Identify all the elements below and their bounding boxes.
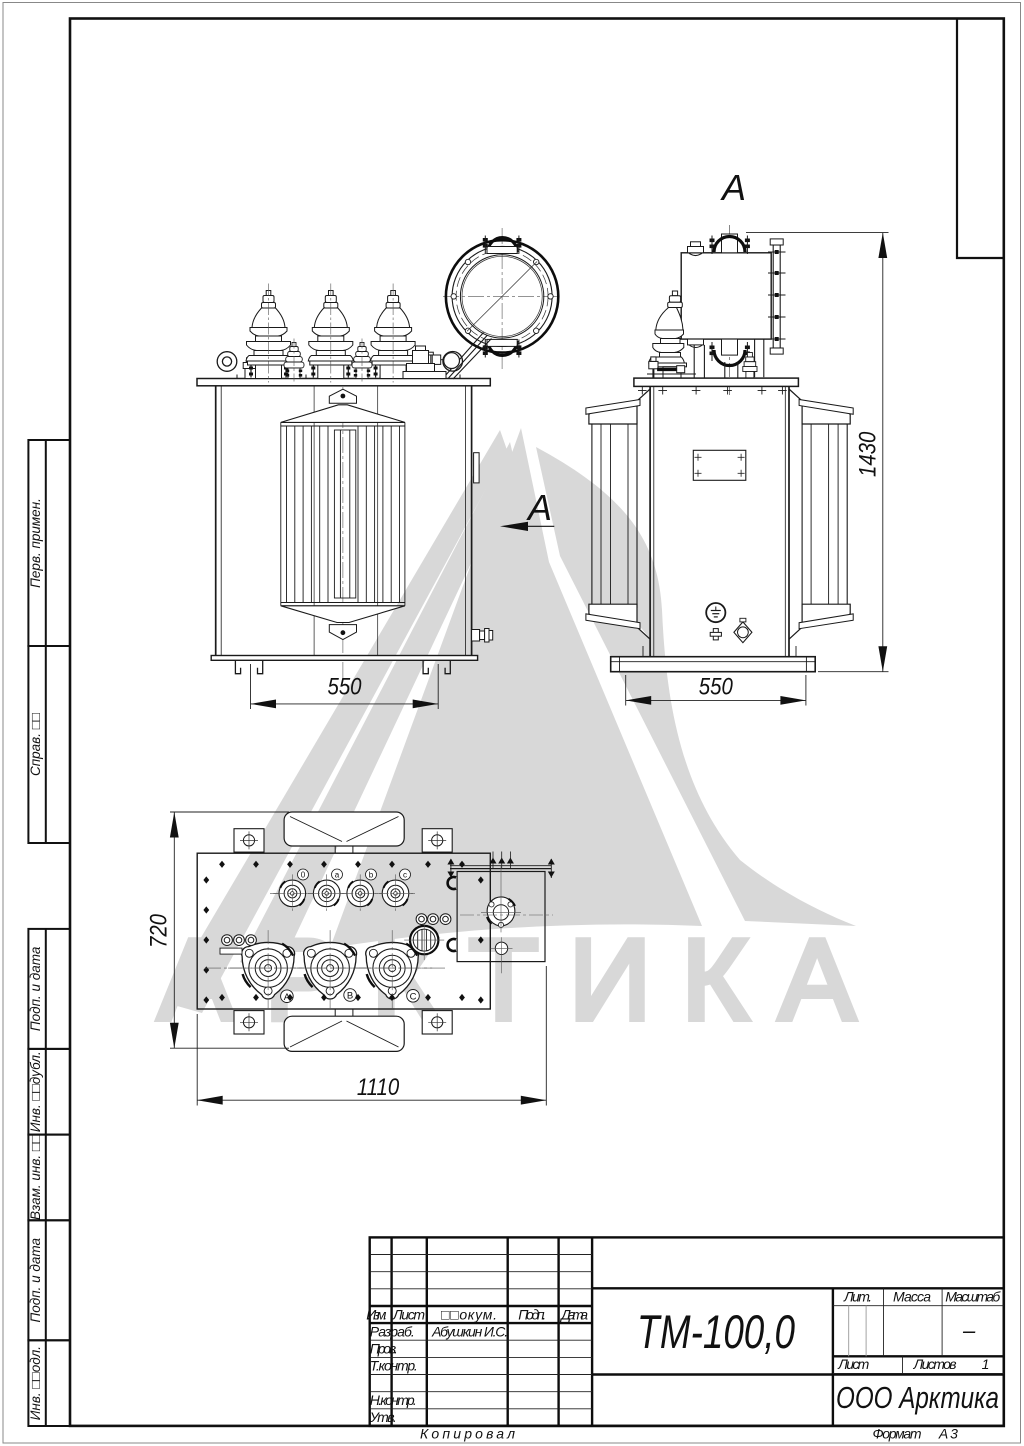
svg-text:Н.контр.: Н.контр. bbox=[370, 1392, 417, 1408]
svg-text:В: В bbox=[347, 991, 353, 1002]
svg-text:1110: 1110 bbox=[357, 1073, 400, 1100]
svg-text:Т.контр.: Т.контр. bbox=[370, 1358, 418, 1374]
svg-text:С: С bbox=[410, 991, 417, 1002]
svg-text:Листов: Листов bbox=[913, 1356, 957, 1372]
svg-text:Подп. и дата: Подп. и дата bbox=[28, 946, 43, 1031]
svg-text:Перв. примен.: Перв. примен. bbox=[28, 498, 43, 588]
svg-text:Лист: Лист bbox=[392, 1307, 425, 1323]
svg-text:Лист: Лист bbox=[837, 1356, 869, 1372]
svg-text:□□окум.: □□окум. bbox=[441, 1307, 497, 1323]
svg-text:Дата: Дата bbox=[559, 1307, 588, 1323]
svg-text:0: 0 bbox=[301, 870, 306, 879]
svg-text:Формат: Формат bbox=[873, 1426, 922, 1442]
svg-text:Лит.: Лит. bbox=[843, 1289, 872, 1305]
svg-text:а: а bbox=[335, 870, 340, 879]
svg-text:720: 720 bbox=[145, 913, 172, 948]
svg-text:А: А bbox=[526, 487, 552, 528]
svg-text:Утв.: Утв. bbox=[369, 1409, 397, 1425]
svg-text:ООО Арктика: ООО Арктика bbox=[836, 1380, 999, 1415]
svg-text:Разраб.: Разраб. bbox=[370, 1324, 415, 1340]
svg-text:ТМ-100,0: ТМ-100,0 bbox=[637, 1305, 795, 1358]
svg-text:–: – bbox=[962, 1318, 976, 1343]
svg-text:Масштаб: Масштаб bbox=[945, 1289, 1001, 1305]
svg-text:b: b bbox=[369, 870, 374, 879]
svg-text:550: 550 bbox=[327, 673, 362, 700]
svg-text:Копировал: Копировал bbox=[420, 1426, 515, 1442]
svg-text:Подп.: Подп. bbox=[518, 1307, 546, 1323]
svg-text:Инв. □□дубл.: Инв. □□дубл. bbox=[28, 1051, 43, 1132]
svg-text:А: А bbox=[720, 167, 746, 208]
svg-text:с: с bbox=[403, 870, 407, 879]
svg-text:Подп. и дата: Подп. и дата bbox=[28, 1238, 43, 1323]
svg-text:Справ. □□: Справ. □□ bbox=[28, 713, 43, 776]
svg-text:Изм.: Изм. bbox=[366, 1307, 387, 1323]
svg-text:550: 550 bbox=[699, 673, 734, 700]
svg-text:Масса: Масса bbox=[893, 1289, 931, 1305]
svg-text:Пров.: Пров. bbox=[370, 1341, 398, 1357]
svg-text:1: 1 bbox=[982, 1356, 990, 1372]
svg-text:А3: А3 bbox=[938, 1426, 958, 1442]
svg-text:1430: 1430 bbox=[854, 431, 881, 477]
svg-text:Инв. □□одл.: Инв. □□одл. bbox=[28, 1346, 43, 1420]
svg-text:Абушкин И.С.: Абушкин И.С. bbox=[431, 1324, 508, 1340]
svg-text:Взам. инв. □□: Взам. инв. □□ bbox=[28, 1135, 43, 1220]
